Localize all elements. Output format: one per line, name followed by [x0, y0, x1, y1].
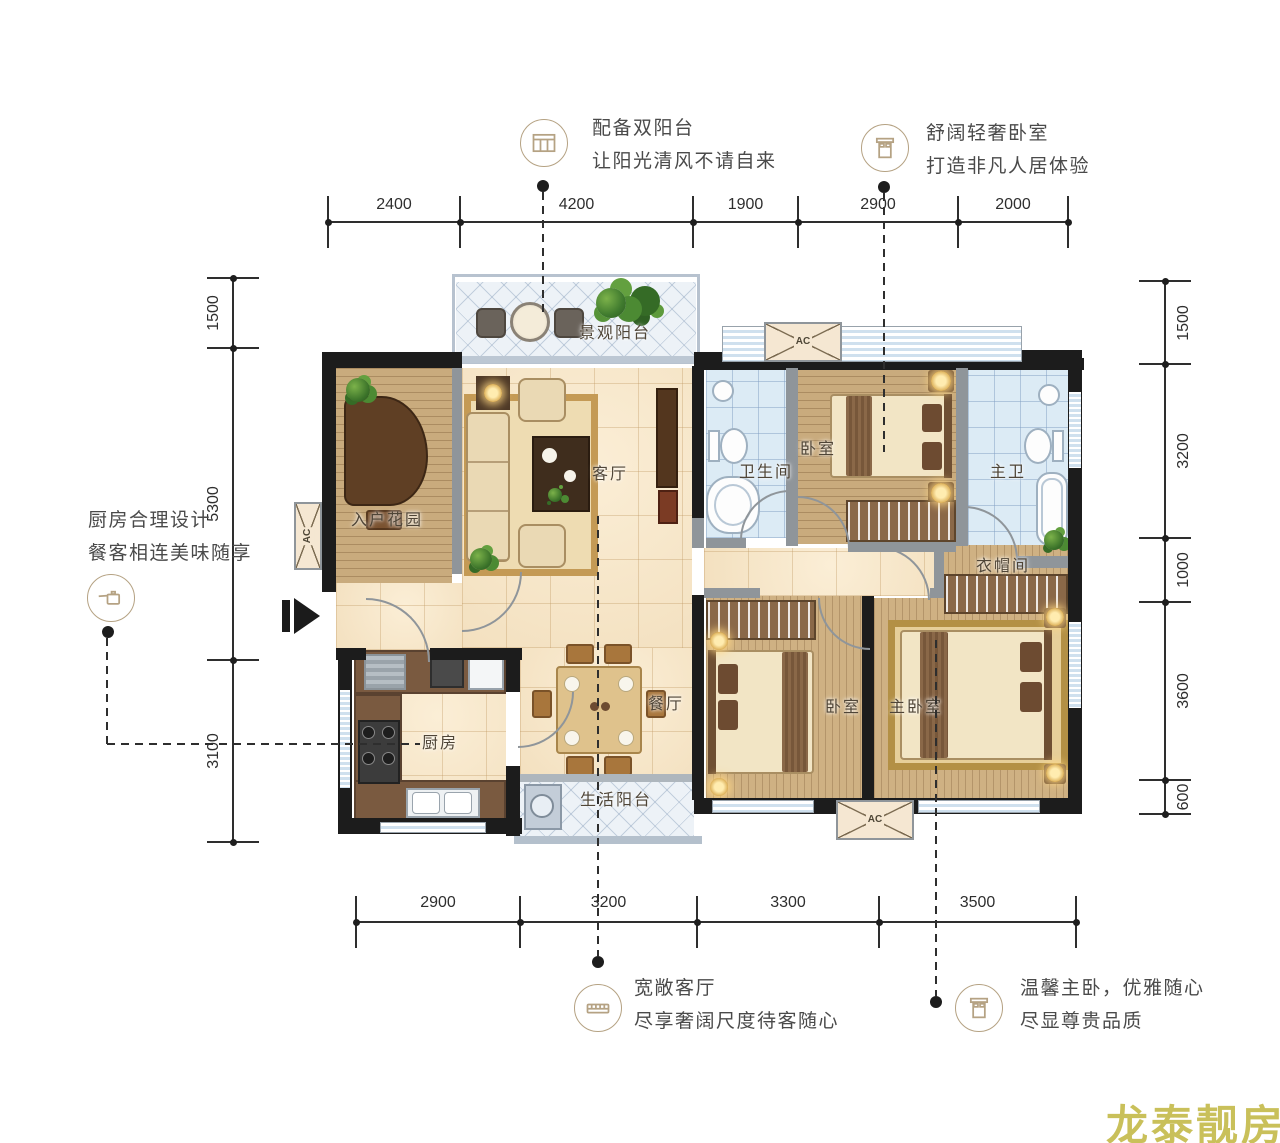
room-label-service-balcony: 生活阳台	[580, 786, 652, 810]
nightstand-lamp	[1046, 608, 1064, 626]
window	[712, 800, 814, 813]
wall	[692, 595, 704, 800]
plate	[618, 676, 634, 692]
wall	[336, 648, 366, 660]
dimension-label: 4200	[559, 196, 595, 214]
leader-dot	[878, 181, 890, 193]
dimension-dot	[1162, 599, 1169, 606]
wall	[692, 518, 704, 548]
callout-title: 舒阔轻奢卧室	[926, 117, 1090, 150]
nightstand-lamp	[710, 778, 728, 796]
dimension-dot	[1162, 777, 1169, 784]
callout-title: 配备双阳台	[592, 112, 777, 145]
dimension-dot	[230, 275, 237, 282]
callout-title: 宽敞客厅	[634, 972, 839, 1005]
dimension-label: 1500	[205, 295, 223, 331]
dining-chair	[604, 756, 632, 776]
kitchen-hob	[430, 656, 464, 688]
bed-blanket	[846, 396, 872, 476]
leader-line	[935, 640, 937, 996]
callout-title: 温馨主卧，优雅随心	[1020, 972, 1205, 1005]
bed-pillow	[718, 664, 738, 694]
dimension-label: 2900	[860, 196, 896, 214]
wall	[322, 368, 336, 592]
dining-chair	[604, 644, 632, 664]
ac-label: AC	[866, 814, 884, 826]
bed-pillow	[922, 442, 942, 470]
coffee-table	[532, 436, 590, 512]
dimension-dot	[795, 219, 802, 226]
wardrobe	[846, 500, 956, 542]
table-lamp	[484, 384, 502, 402]
dimension-label: 1000	[1175, 552, 1193, 588]
room-label-view-balcony: 景观阳台	[579, 319, 651, 343]
dimension-label: 1900	[728, 196, 764, 214]
nightstand-lamp	[931, 371, 951, 391]
plate	[618, 730, 634, 746]
plate	[542, 448, 557, 463]
dimension-dot	[517, 919, 524, 926]
sofa-icon	[574, 984, 622, 1032]
bed-pillow	[1020, 682, 1042, 712]
bed-icon	[861, 124, 909, 172]
headboard	[1044, 630, 1052, 760]
ac-label: AC	[302, 527, 314, 545]
bed-pillow	[718, 700, 738, 730]
sink-bowl	[444, 792, 472, 814]
burner	[382, 726, 395, 739]
plant	[1044, 530, 1064, 550]
sink-bowl	[412, 792, 440, 814]
sink	[712, 380, 734, 402]
plate	[564, 730, 580, 746]
dimension-dot	[876, 919, 883, 926]
burner	[382, 752, 395, 765]
sliding-door	[520, 774, 694, 782]
ac-label: AC	[794, 336, 812, 348]
floorplan-canvas: 配备双阳台 让阳光清风不请自来 舒阔轻奢卧室 打造非凡人居体验 厨房合理设计 餐…	[0, 0, 1280, 1143]
callout-subtitle: 让阳光清风不请自来	[592, 145, 777, 178]
dimension-dot	[1065, 219, 1072, 226]
sink	[1038, 384, 1060, 406]
callout-kitchen-design: 厨房合理设计 餐客相连美味随享	[88, 504, 252, 570]
entrance-arrow-bar	[282, 600, 290, 632]
room-label-dining: 餐厅	[648, 690, 684, 714]
leader-line	[106, 638, 108, 744]
nightstand-lamp	[710, 632, 728, 650]
wall	[506, 660, 520, 692]
dimension-label: 3500	[960, 894, 996, 912]
ac-unit-left: AC	[294, 502, 322, 570]
wall	[322, 352, 462, 368]
washing-machine-door	[530, 794, 554, 818]
room-label-master-bath: 主卫	[990, 458, 1026, 482]
dimension-dot	[694, 919, 701, 926]
burner	[362, 752, 375, 765]
armchair	[518, 378, 566, 422]
table-plant	[548, 488, 562, 502]
callout-title: 厨房合理设计	[88, 504, 252, 537]
window	[1069, 392, 1081, 468]
window	[340, 690, 350, 788]
toilet-tank	[1052, 430, 1064, 462]
kitchen-icon	[87, 574, 135, 622]
callout-subtitle: 打造非凡人居体验	[926, 150, 1090, 183]
dimension-dot	[457, 219, 464, 226]
tv-unit	[658, 490, 678, 524]
dimension-dot	[1162, 811, 1169, 818]
dimension-label: 600	[1175, 784, 1193, 811]
room-label-bedroom-bottom: 卧室	[825, 693, 861, 717]
dimension-label: 3100	[205, 733, 223, 769]
balcony-sill	[452, 356, 700, 363]
leader-dot	[102, 626, 114, 638]
tv-cabinet	[656, 388, 678, 488]
dimension-dot	[230, 839, 237, 846]
sofa	[466, 412, 510, 562]
leader-line	[542, 192, 544, 314]
nightstand-lamp	[931, 483, 951, 503]
dimension-line	[356, 921, 1076, 923]
dimension-label: 3200	[1175, 433, 1193, 469]
room-label-cloakroom: 衣帽间	[976, 552, 1030, 576]
headboard	[944, 394, 952, 478]
dimension-label: 2400	[376, 196, 412, 214]
callout-subtitle: 尽享奢阔尺度待客随心	[634, 1005, 839, 1038]
dimension-dot	[1073, 919, 1080, 926]
ac-unit-top: AC	[764, 322, 842, 362]
wall	[430, 648, 522, 660]
room-label-living: 客厅	[592, 460, 628, 484]
room-label-entry-garden: 入户花园	[351, 506, 423, 530]
callout-spacious-living: 宽敞客厅 尽享奢阔尺度待客随心	[634, 972, 839, 1038]
room-label-bedroom-top: 卧室	[800, 435, 836, 459]
headboard	[708, 650, 716, 774]
ac-unit-bottom: AC	[836, 800, 914, 840]
dining-chair	[566, 756, 594, 776]
dimension-dot	[230, 657, 237, 664]
callout-subtitle: 尽显尊贵品质	[1020, 1005, 1205, 1038]
window	[380, 822, 486, 833]
watermark: 龙泰靓房	[1106, 1092, 1280, 1143]
dimension-label: 2900	[420, 894, 456, 912]
wall	[692, 366, 704, 518]
dimension-label: 3600	[1175, 673, 1193, 709]
toilet	[1024, 428, 1052, 464]
dining-chair	[566, 644, 594, 664]
dimension-dot	[325, 219, 332, 226]
callout-double-balcony: 配备双阳台 让阳光清风不请自来	[592, 112, 777, 178]
balcony-sill	[514, 836, 702, 844]
wall	[452, 368, 462, 574]
nightstand-lamp	[1046, 764, 1064, 782]
toilet-tank	[708, 430, 720, 462]
leader-dot	[930, 996, 942, 1008]
callout-warm-master: 温馨主卧，优雅随心 尽显尊贵品质	[1020, 972, 1205, 1038]
dimension-dot	[1162, 278, 1169, 285]
dimension-label: 2000	[995, 196, 1031, 214]
bed-icon	[955, 984, 1003, 1032]
burner	[362, 726, 375, 739]
dimension-dot	[353, 919, 360, 926]
leader-line	[107, 743, 420, 745]
leader-dot	[537, 180, 549, 192]
bed-blanket	[782, 652, 808, 772]
window	[1069, 622, 1081, 708]
dimension-label: 1500	[1175, 305, 1193, 341]
bowl	[601, 702, 610, 711]
wall	[704, 588, 760, 598]
floor-plant	[470, 548, 492, 570]
dimension-dot	[955, 219, 962, 226]
callout-cozy-bedroom: 舒阔轻奢卧室 打造非凡人居体验	[926, 117, 1090, 183]
leader-dot	[592, 956, 604, 968]
leader-line	[597, 516, 599, 956]
room-label-kitchen: 厨房	[422, 729, 458, 753]
plate	[564, 470, 576, 482]
entrance-arrow-icon	[294, 598, 320, 634]
bed-pillow	[1020, 642, 1042, 672]
dimension-dot	[690, 219, 697, 226]
dimension-dot	[1162, 361, 1169, 368]
callout-subtitle: 餐客相连美味随享	[88, 537, 252, 570]
garden-plant	[346, 378, 370, 402]
plate	[564, 676, 580, 692]
balcony-frame	[452, 274, 700, 364]
leader-line	[883, 193, 885, 452]
armchair	[518, 524, 566, 568]
wall	[934, 545, 944, 593]
dimension-label: 3300	[770, 894, 806, 912]
dimension-dot	[1162, 535, 1169, 542]
dimension-dot	[230, 345, 237, 352]
bed-pillow	[922, 404, 942, 432]
wall	[506, 766, 520, 836]
window-icon	[520, 119, 568, 167]
room-label-bathroom: 卫生间	[739, 458, 793, 482]
